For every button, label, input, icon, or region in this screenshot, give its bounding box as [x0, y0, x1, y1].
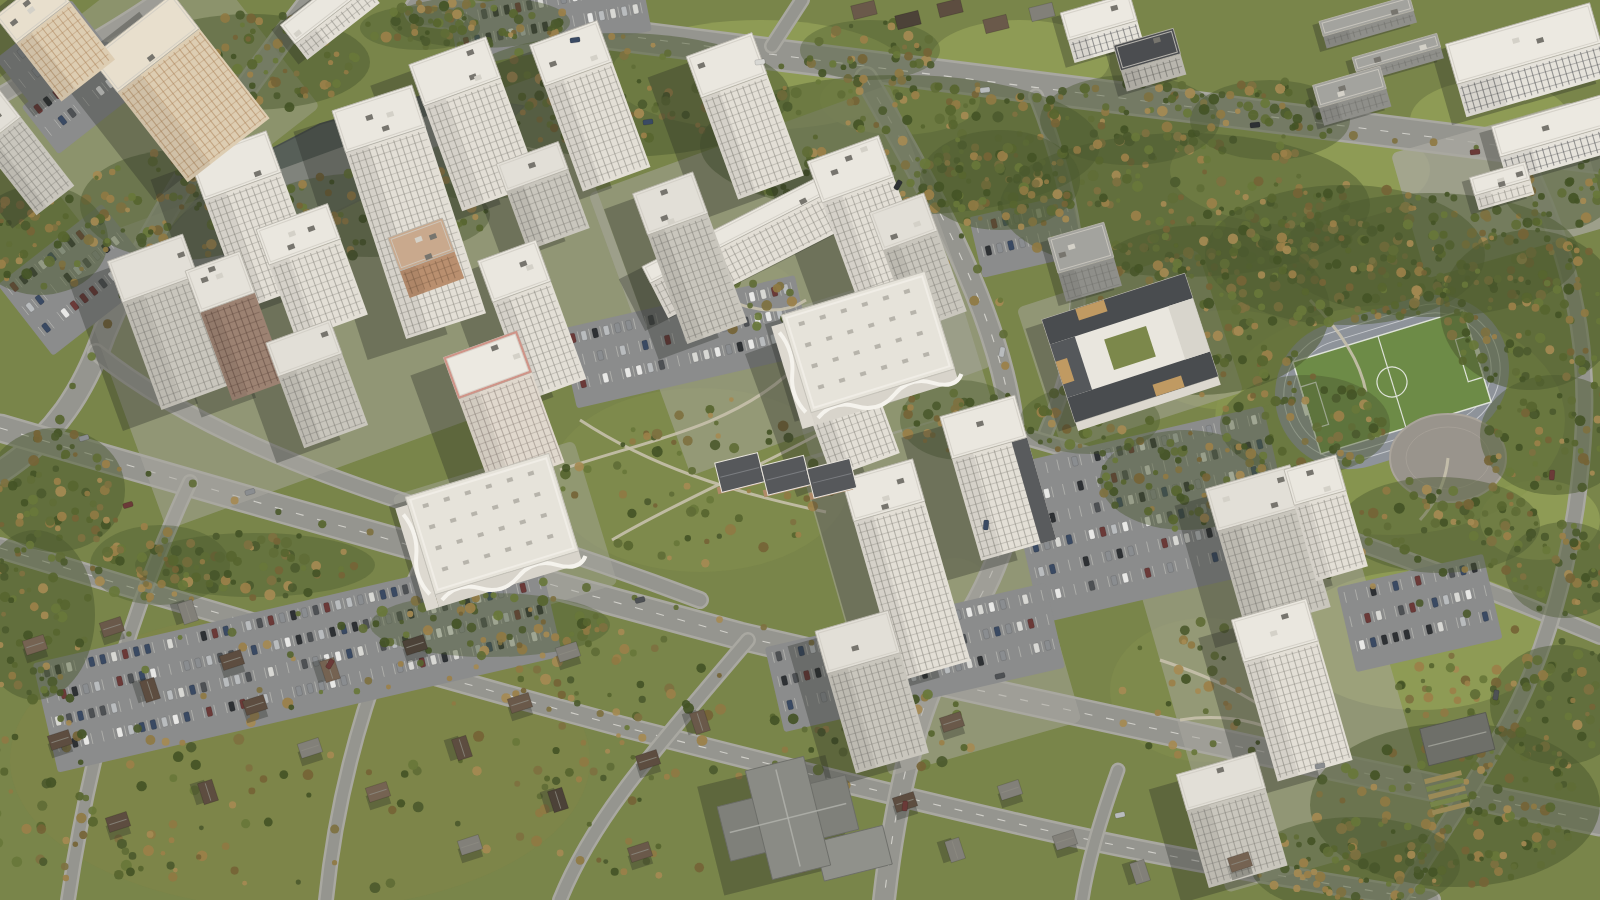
tree — [1407, 851, 1415, 859]
tree — [1357, 787, 1367, 797]
tree — [1403, 219, 1413, 229]
tree — [1236, 275, 1246, 285]
tree — [906, 179, 914, 187]
tree — [452, 701, 456, 705]
tree — [694, 863, 704, 873]
tree — [1380, 254, 1387, 261]
tree — [907, 404, 914, 411]
tree — [1121, 153, 1129, 161]
tree — [1216, 176, 1226, 186]
tree — [1145, 416, 1154, 425]
road-car — [1470, 149, 1480, 155]
tree — [1465, 681, 1471, 687]
tree — [1501, 232, 1506, 237]
tree — [1325, 263, 1332, 270]
tree — [558, 722, 566, 730]
tree — [498, 28, 506, 36]
tree — [46, 517, 55, 526]
tree — [103, 517, 110, 524]
tree — [1423, 712, 1430, 719]
tree — [516, 666, 524, 674]
tree — [1166, 701, 1172, 707]
tree — [1065, 116, 1069, 120]
tree — [999, 330, 1008, 339]
tree — [773, 284, 782, 293]
tree — [546, 707, 551, 712]
tree — [541, 619, 546, 624]
tree — [162, 569, 169, 576]
tree — [364, 677, 372, 685]
tree — [12, 662, 18, 668]
tree — [1028, 217, 1037, 226]
tree — [1445, 192, 1450, 197]
tree — [1233, 402, 1243, 412]
tree — [1546, 211, 1552, 217]
tree — [339, 572, 346, 579]
tree — [39, 858, 47, 866]
tree — [985, 177, 990, 182]
tree — [1203, 708, 1209, 714]
tree — [1440, 292, 1446, 298]
tree — [143, 845, 154, 856]
tree — [109, 169, 115, 175]
tree — [579, 757, 589, 767]
tree — [612, 708, 620, 716]
tree — [669, 491, 674, 496]
tree — [240, 583, 251, 594]
tree — [611, 868, 619, 876]
tree — [284, 102, 294, 112]
tree — [1389, 785, 1396, 792]
tree — [87, 352, 95, 360]
tree — [1487, 306, 1492, 311]
tree — [283, 69, 288, 74]
tree — [233, 35, 238, 40]
tree — [1102, 465, 1107, 470]
tree — [264, 44, 270, 50]
tree — [710, 440, 720, 450]
tree — [398, 26, 403, 31]
tree — [1112, 177, 1121, 186]
tree — [1579, 532, 1588, 541]
tree — [1409, 298, 1420, 309]
tree — [761, 624, 767, 630]
tree — [1312, 423, 1322, 433]
tree — [228, 628, 237, 637]
tree — [514, 781, 520, 787]
tree — [638, 100, 648, 110]
tree — [1498, 726, 1504, 732]
tree — [533, 766, 542, 775]
tree — [1144, 507, 1152, 515]
tree — [1300, 222, 1306, 228]
tree — [173, 868, 178, 873]
tree — [1507, 275, 1513, 281]
tree — [1235, 108, 1240, 113]
tree — [1261, 93, 1266, 98]
tree — [1485, 850, 1493, 858]
tree — [1430, 138, 1438, 146]
tree — [157, 580, 165, 588]
tree — [19, 571, 25, 577]
tree — [1343, 215, 1350, 222]
tree — [1474, 807, 1482, 815]
tree — [1397, 892, 1404, 899]
tree — [959, 402, 964, 407]
tree — [37, 800, 47, 810]
tree — [386, 685, 391, 690]
tree — [934, 114, 944, 124]
tree — [1534, 440, 1540, 446]
tree — [146, 541, 155, 550]
tree — [1394, 503, 1405, 514]
tree — [858, 54, 868, 64]
tree — [934, 415, 941, 422]
tree — [628, 796, 637, 805]
tree — [1590, 471, 1595, 476]
tree — [1293, 188, 1303, 198]
tree — [583, 618, 591, 626]
tree — [903, 409, 913, 419]
tree — [1052, 189, 1062, 199]
tree — [963, 103, 968, 108]
tree — [1268, 316, 1278, 326]
tree — [716, 433, 721, 438]
tree — [696, 663, 705, 672]
tree — [1343, 865, 1350, 872]
tree — [480, 3, 486, 9]
tree — [1454, 697, 1462, 705]
tree — [30, 602, 39, 611]
tree — [1591, 355, 1597, 361]
tree — [1382, 514, 1388, 520]
tree — [12, 734, 19, 741]
tree — [1395, 683, 1402, 690]
tree — [1415, 195, 1421, 201]
tree — [1533, 461, 1538, 466]
tree — [661, 636, 668, 643]
tree — [1520, 399, 1527, 406]
tree — [1571, 412, 1576, 417]
tree — [1581, 309, 1589, 317]
tree — [1348, 423, 1355, 430]
tree — [1064, 439, 1075, 450]
tree — [1524, 661, 1532, 669]
tree — [1231, 304, 1241, 314]
tree — [1260, 218, 1270, 228]
tree — [465, 603, 476, 614]
tree — [1200, 259, 1205, 264]
tree — [701, 509, 709, 517]
tree — [1270, 881, 1279, 890]
tree — [1559, 533, 1566, 540]
tree — [1144, 92, 1154, 102]
tree — [1273, 256, 1282, 265]
tree — [1530, 481, 1539, 490]
tree — [1421, 679, 1426, 684]
tree — [1565, 263, 1572, 270]
tree — [1195, 688, 1201, 694]
tree — [1529, 449, 1536, 456]
tree — [93, 536, 100, 543]
tree — [624, 725, 629, 730]
tree — [1177, 145, 1183, 151]
tree — [1364, 877, 1369, 882]
tree — [169, 837, 175, 843]
tree — [1202, 170, 1207, 175]
tree — [172, 566, 179, 573]
tree — [1572, 720, 1582, 730]
tree — [1281, 78, 1289, 86]
tree — [126, 631, 131, 636]
tree — [717, 534, 722, 539]
tree — [76, 813, 86, 823]
tree — [6, 241, 12, 247]
tree — [17, 513, 24, 520]
tree — [330, 825, 339, 834]
tree — [47, 677, 57, 687]
tree — [496, 632, 507, 643]
tree — [1525, 330, 1531, 336]
tree — [542, 784, 549, 791]
tree — [576, 776, 582, 782]
tree — [1080, 83, 1090, 93]
tree — [1131, 132, 1140, 141]
tree — [74, 260, 81, 267]
tree — [1515, 727, 1526, 738]
tree — [625, 838, 632, 845]
tree — [1534, 521, 1539, 526]
tree — [629, 438, 635, 444]
tree — [1469, 340, 1479, 350]
tree — [1405, 192, 1411, 198]
tree — [1153, 470, 1158, 475]
tree — [1397, 282, 1402, 287]
tree — [1500, 852, 1507, 859]
tree — [910, 61, 917, 68]
tree — [1282, 397, 1289, 404]
tree — [452, 9, 462, 19]
tree — [1511, 680, 1517, 686]
tree — [1421, 819, 1431, 829]
tree — [1537, 586, 1543, 592]
tree — [1592, 178, 1597, 183]
tree — [84, 594, 92, 602]
tree — [878, 106, 887, 115]
tree — [560, 486, 565, 491]
tree — [1294, 834, 1299, 839]
tree — [902, 115, 912, 125]
tree — [44, 256, 55, 267]
tree — [813, 135, 818, 140]
tree — [63, 875, 69, 881]
tree — [1181, 639, 1186, 644]
tree — [288, 583, 297, 592]
tree — [1181, 674, 1191, 684]
tree — [1285, 223, 1290, 228]
tree — [334, 52, 340, 58]
tree — [1032, 93, 1042, 103]
tree — [1223, 406, 1230, 413]
tree — [729, 443, 739, 453]
tree — [1038, 405, 1049, 416]
tree — [1370, 309, 1375, 314]
tree — [671, 440, 676, 445]
tree — [1549, 408, 1556, 415]
tree — [1460, 349, 1466, 355]
tree — [986, 94, 997, 105]
tree — [897, 76, 906, 85]
tree — [664, 774, 670, 780]
tree — [837, 90, 845, 98]
tree — [39, 676, 44, 681]
tree — [1486, 536, 1497, 547]
tree — [1152, 244, 1159, 251]
tree — [1303, 191, 1307, 195]
tree — [1246, 229, 1255, 238]
tree — [1574, 198, 1579, 203]
tree — [1441, 211, 1448, 218]
tree — [1421, 270, 1427, 276]
tree — [126, 867, 135, 876]
tree — [235, 10, 244, 19]
tree — [1047, 438, 1052, 443]
tree — [1116, 198, 1121, 203]
tree — [1248, 110, 1258, 120]
tree — [78, 760, 83, 765]
tree — [1225, 448, 1230, 453]
tree — [1299, 858, 1308, 867]
tree — [297, 202, 303, 208]
tree — [1434, 510, 1444, 520]
tree — [421, 37, 430, 46]
tree — [56, 444, 62, 450]
tree — [1145, 742, 1152, 749]
tree — [88, 817, 98, 827]
tree — [1545, 436, 1552, 443]
tree — [358, 624, 367, 633]
tree — [516, 642, 522, 648]
tree — [1566, 316, 1574, 324]
tree — [1432, 878, 1436, 882]
tree — [1531, 803, 1537, 809]
tree — [1288, 270, 1296, 278]
tree — [1311, 869, 1317, 875]
tree — [1530, 411, 1538, 419]
tree — [377, 606, 388, 617]
tree — [1058, 94, 1063, 99]
tree — [0, 768, 8, 776]
tree — [1034, 170, 1040, 176]
tree — [54, 241, 62, 249]
tree — [816, 79, 821, 84]
tree — [935, 83, 943, 91]
tree — [1255, 92, 1260, 97]
tree — [901, 160, 910, 169]
tree — [516, 833, 524, 841]
tree — [964, 219, 971, 226]
tree — [814, 37, 823, 46]
tree — [1327, 436, 1334, 443]
tree — [619, 490, 627, 498]
tree — [1470, 213, 1479, 222]
tree — [1491, 558, 1498, 565]
tree — [1570, 698, 1575, 703]
tree — [62, 837, 69, 844]
tree — [752, 321, 761, 330]
tree — [969, 98, 976, 105]
tree — [1254, 289, 1263, 298]
tree — [1557, 393, 1563, 399]
tree — [1363, 402, 1372, 411]
tree — [796, 110, 802, 116]
tree — [1271, 396, 1281, 406]
tree — [1394, 855, 1402, 863]
tree — [634, 713, 642, 721]
tree — [1564, 833, 1572, 841]
tree — [1409, 491, 1418, 500]
tree — [1288, 399, 1295, 406]
tree — [90, 510, 99, 519]
tree — [1467, 708, 1474, 715]
tree — [1523, 585, 1528, 590]
tree — [389, 8, 398, 17]
tree — [1541, 533, 1549, 541]
tree — [275, 509, 281, 515]
tree — [491, 5, 498, 12]
tree — [276, 578, 281, 583]
tree — [296, 880, 301, 885]
tree — [1494, 530, 1501, 537]
tree — [1203, 298, 1214, 309]
tree — [574, 462, 583, 471]
tree — [914, 420, 921, 427]
tree — [856, 87, 864, 95]
tree — [1083, 93, 1088, 98]
tree — [666, 689, 676, 699]
tree — [534, 624, 544, 634]
tree — [367, 529, 374, 536]
tree — [1319, 279, 1326, 286]
tree — [231, 579, 236, 584]
tree — [29, 507, 38, 516]
tree — [199, 825, 204, 830]
tree — [477, 651, 486, 660]
tree — [1208, 139, 1216, 147]
tree — [631, 755, 636, 760]
tree — [1567, 782, 1576, 791]
tree — [1206, 198, 1217, 209]
tree — [639, 696, 646, 703]
tree — [327, 751, 334, 758]
tree — [683, 436, 693, 446]
tree — [831, 26, 841, 36]
tree — [554, 679, 562, 687]
tree — [908, 396, 915, 403]
tree — [482, 845, 491, 854]
tree — [1238, 355, 1247, 364]
tree — [200, 693, 206, 699]
tree — [1188, 641, 1196, 649]
tree — [1444, 317, 1452, 325]
tree — [944, 160, 950, 166]
tree — [97, 504, 104, 511]
tree — [59, 260, 66, 267]
tree — [1336, 823, 1347, 834]
tree — [303, 588, 312, 597]
tree — [576, 856, 585, 865]
tree — [349, 52, 357, 60]
